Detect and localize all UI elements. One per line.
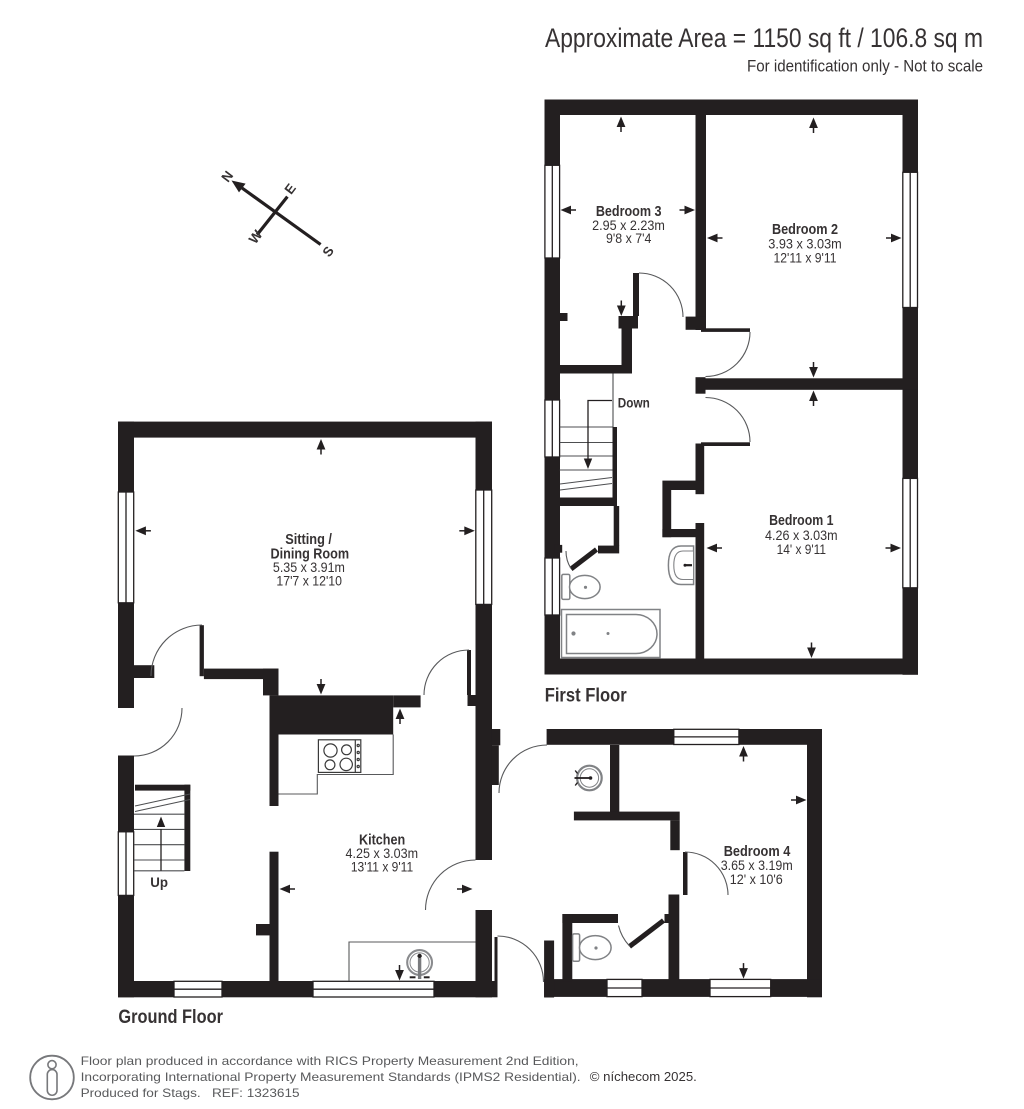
- svg-text:For identification only - Not: For identification only - Not to scale: [747, 58, 983, 76]
- svg-text:First Floor: First Floor: [545, 686, 628, 707]
- svg-text:3.93 x 3.03m: 3.93 x 3.03m: [768, 236, 842, 251]
- svg-text:9'8 x 7'4: 9'8 x 7'4: [606, 231, 652, 246]
- svg-text:13'11 x 9'11: 13'11 x 9'11: [351, 859, 413, 874]
- svg-text:Bedroom 1: Bedroom 1: [769, 513, 833, 529]
- svg-text:3.65 x 3.19m: 3.65 x 3.19m: [721, 858, 793, 873]
- svg-text:12'11 x 9'11: 12'11 x 9'11: [774, 250, 837, 265]
- svg-text:14' x 9'11: 14' x 9'11: [777, 542, 826, 557]
- svg-text:12' x 10'6: 12' x 10'6: [730, 872, 783, 887]
- svg-text:Down: Down: [618, 396, 650, 411]
- svg-text:Approximate Area = 1150 sq ft: Approximate Area = 1150 sq ft / 106.8 sq…: [545, 23, 983, 53]
- svg-text:Sitting /: Sitting /: [285, 532, 332, 548]
- svg-text:Up: Up: [150, 875, 168, 890]
- svg-text:Ground Floor: Ground Floor: [118, 1007, 223, 1028]
- svg-text:Produced for Stags. REF: 132: Produced for Stags. REF: 1323615: [81, 1086, 300, 1100]
- svg-text:4.26 x 3.03m: 4.26 x 3.03m: [765, 528, 838, 543]
- svg-text:Incorporating International Pr: Incorporating International Property Mea…: [81, 1070, 581, 1084]
- svg-text:© níchecom 2025.: © níchecom 2025.: [590, 1069, 697, 1084]
- svg-text:Floor plan produced in accorda: Floor plan produced in accordance with R…: [81, 1054, 579, 1068]
- svg-text:17'7 x 12'10: 17'7 x 12'10: [276, 574, 342, 589]
